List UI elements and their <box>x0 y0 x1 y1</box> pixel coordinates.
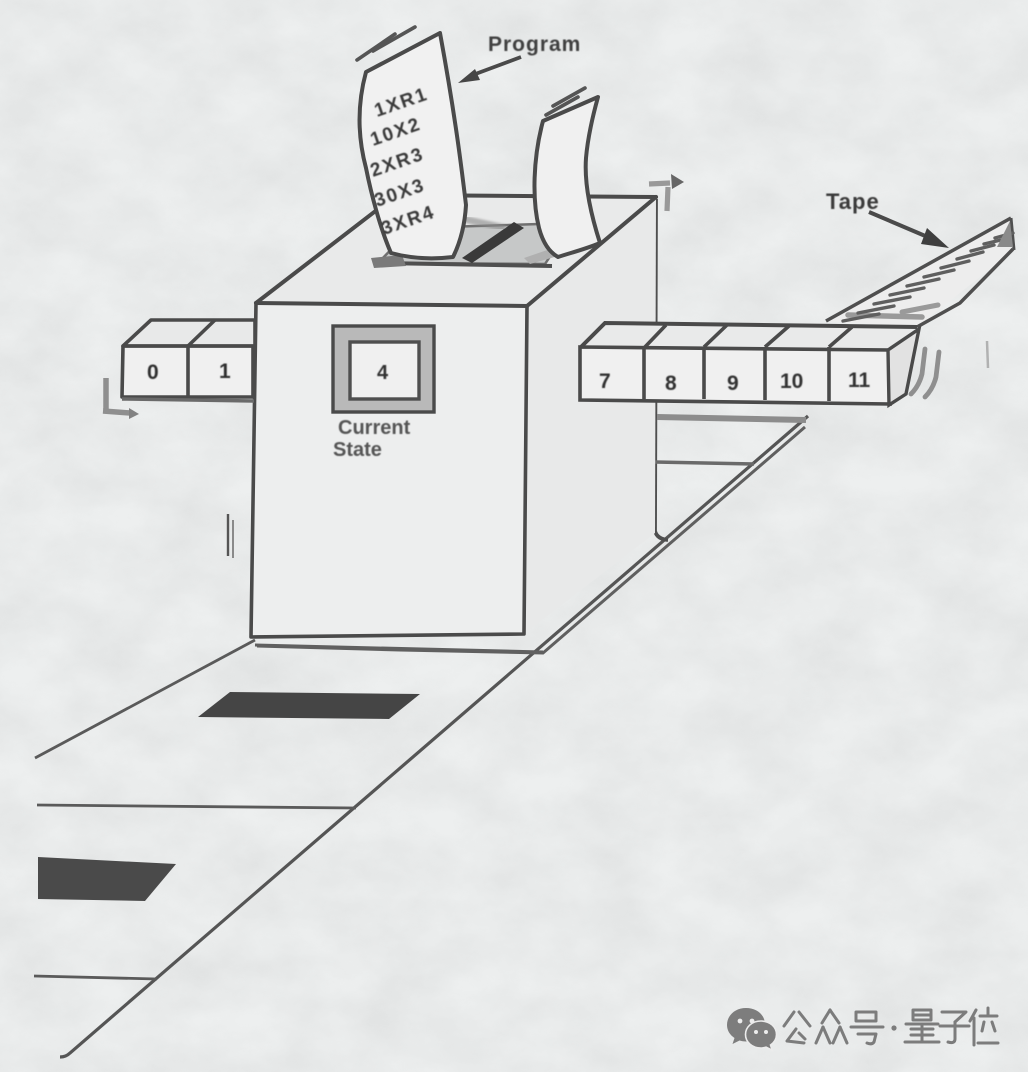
svg-text:9: 9 <box>727 372 739 395</box>
svg-text:State: State <box>333 439 382 461</box>
svg-text:11: 11 <box>848 369 871 392</box>
svg-text:Program: Program <box>488 33 581 56</box>
svg-text:7: 7 <box>599 370 611 393</box>
svg-text:1: 1 <box>219 360 231 383</box>
svg-text:4: 4 <box>377 362 389 384</box>
svg-text:0: 0 <box>147 361 159 384</box>
svg-text:10: 10 <box>780 370 803 393</box>
svg-text:Current: Current <box>338 417 411 439</box>
svg-text:Tape: Tape <box>826 189 880 214</box>
svg-text:8: 8 <box>665 372 677 395</box>
